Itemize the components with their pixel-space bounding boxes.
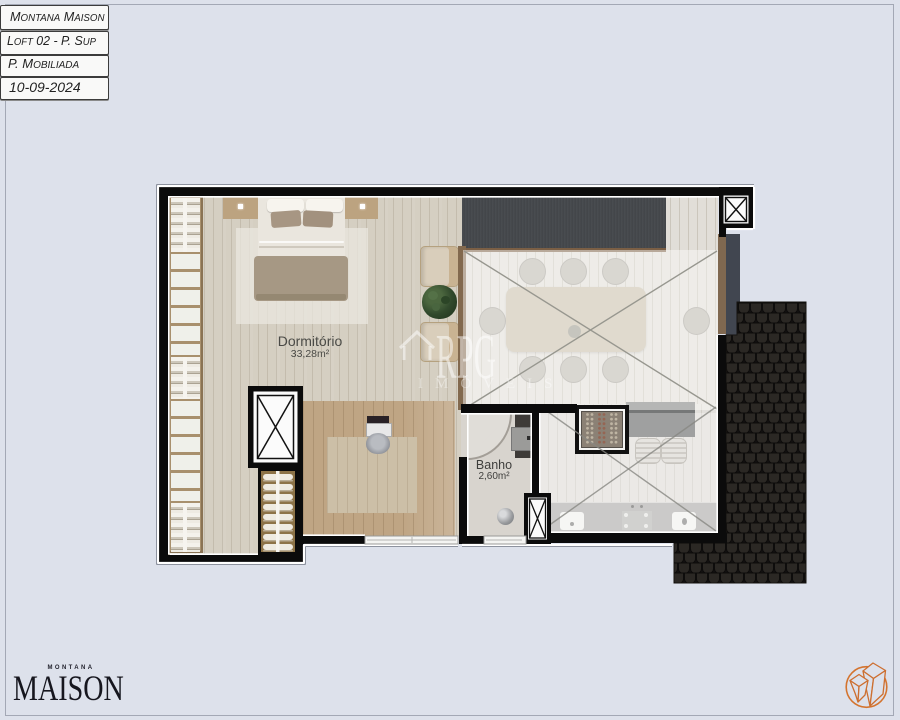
svg-text:IMÓVEIS: IMÓVEIS	[418, 375, 565, 392]
